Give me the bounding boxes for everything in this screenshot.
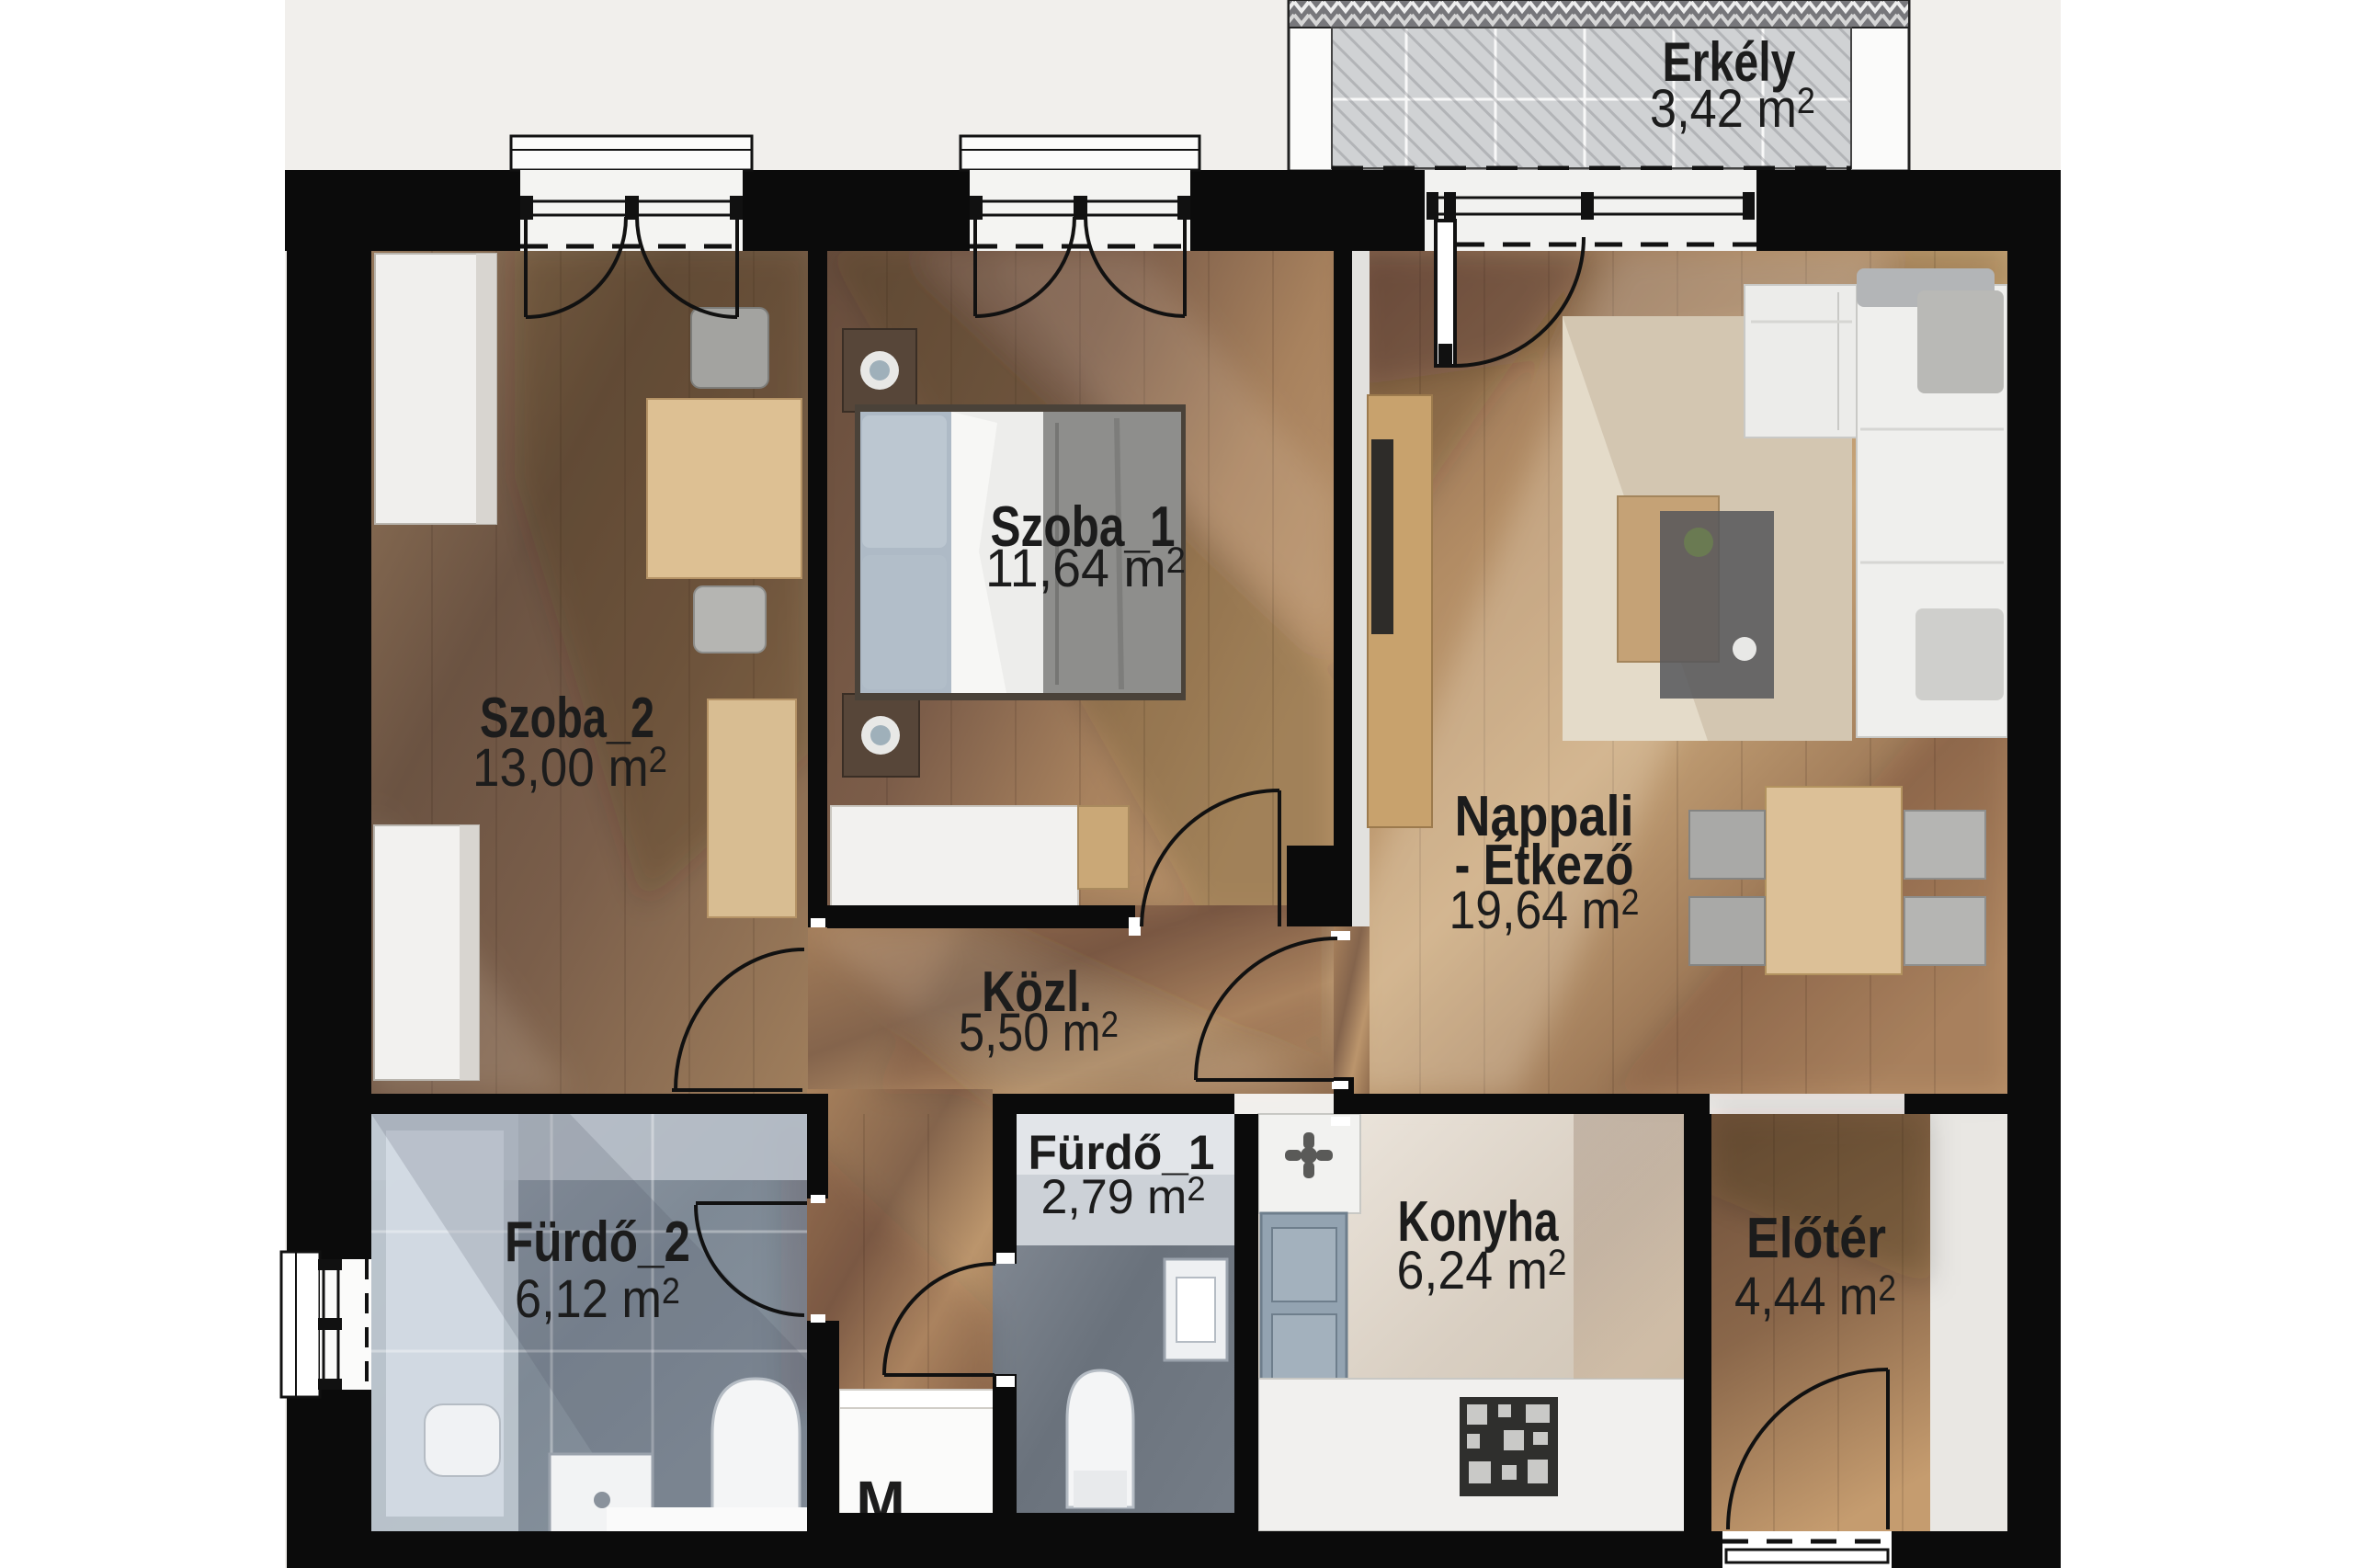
svg-text:11,64 m2: 11,64 m2 <box>985 539 1186 598</box>
svg-text:13,00 m2: 13,00 m2 <box>472 738 667 798</box>
svg-text:6,12 m2: 6,12 m2 <box>515 1269 680 1329</box>
svg-text:Fürdő_2: Fürdő_2 <box>505 1210 690 1274</box>
svg-text:6,24 m2: 6,24 m2 <box>1397 1241 1567 1301</box>
svg-text:Előtér: Előtér <box>1746 1207 1886 1270</box>
svg-text:2,79 m2: 2,79 m2 <box>1041 1170 1206 1224</box>
svg-text:19,64 m2: 19,64 m2 <box>1449 881 1640 940</box>
svg-text:4,44 m2: 4,44 m2 <box>1734 1267 1896 1326</box>
svg-text:3,42 m2: 3,42 m2 <box>1650 79 1815 139</box>
svg-text:5,50 m2: 5,50 m2 <box>959 1003 1119 1062</box>
